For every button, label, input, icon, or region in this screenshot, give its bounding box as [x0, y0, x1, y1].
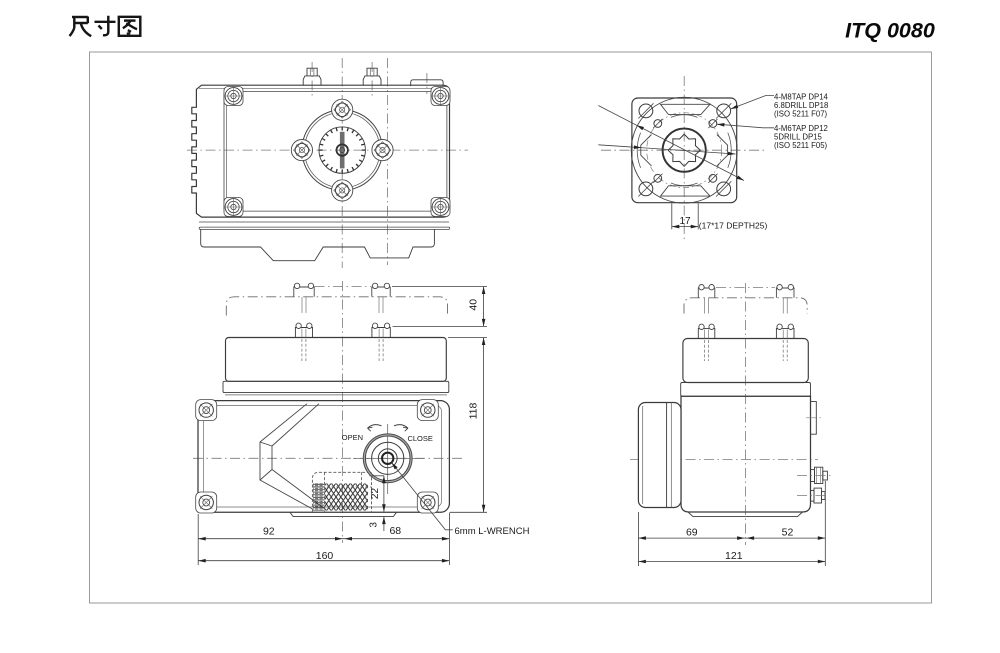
svg-text:CLOSE: CLOSE [407, 434, 432, 443]
svg-text:ITQ 0080: ITQ 0080 [845, 19, 935, 43]
svg-text:3: 3 [369, 522, 380, 528]
svg-text:OPEN: OPEN [342, 433, 363, 442]
svg-text:52: 52 [782, 526, 794, 538]
svg-text:69: 69 [686, 526, 698, 538]
svg-text:(ISO 5211 F05): (ISO 5211 F05) [774, 141, 828, 150]
svg-text:22: 22 [370, 488, 381, 500]
svg-text:160: 160 [316, 550, 334, 562]
svg-text:118: 118 [468, 402, 480, 419]
svg-text:40: 40 [468, 299, 480, 311]
svg-text:68: 68 [389, 525, 401, 537]
svg-text:92: 92 [263, 526, 275, 538]
svg-text:6mm L-WRENCH: 6mm L-WRENCH [455, 526, 530, 537]
svg-text:(17*17 DEPTH25): (17*17 DEPTH25) [699, 221, 768, 231]
svg-text:(ISO 5211 F07): (ISO 5211 F07) [774, 110, 828, 119]
svg-text:121: 121 [725, 550, 743, 562]
svg-text:17: 17 [679, 216, 691, 227]
